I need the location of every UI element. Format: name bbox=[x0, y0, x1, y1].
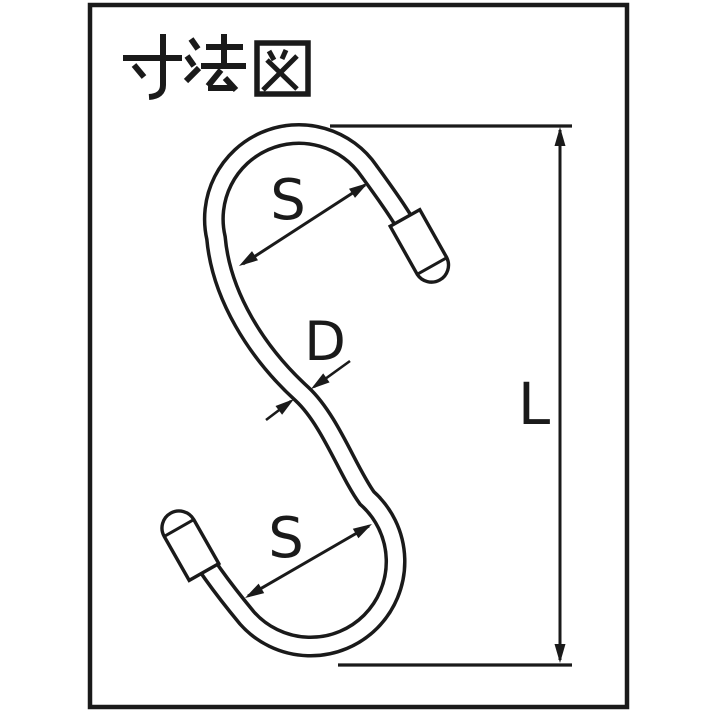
arrowhead bbox=[555, 644, 566, 663]
diagram-canvas: S D S L bbox=[0, 0, 713, 713]
dimension-diagram: 寸法図 bbox=[0, 0, 713, 713]
arrowhead bbox=[353, 524, 372, 538]
arrowhead bbox=[239, 251, 258, 266]
arrowhead bbox=[245, 584, 264, 598]
label-l: L bbox=[518, 370, 550, 438]
arrowhead bbox=[555, 127, 566, 146]
label-bottom-s: S bbox=[268, 506, 304, 571]
arrowhead bbox=[349, 183, 368, 198]
top-cap bbox=[390, 210, 448, 282]
label-d: D bbox=[304, 310, 346, 373]
arrowhead bbox=[311, 373, 330, 389]
dim-bottom-s bbox=[245, 524, 372, 598]
frame-border bbox=[90, 5, 627, 707]
page-title: 寸法図 bbox=[118, 22, 328, 102]
bottom-cap bbox=[162, 511, 219, 580]
label-top-s: S bbox=[270, 168, 306, 233]
arrowhead bbox=[276, 399, 295, 415]
